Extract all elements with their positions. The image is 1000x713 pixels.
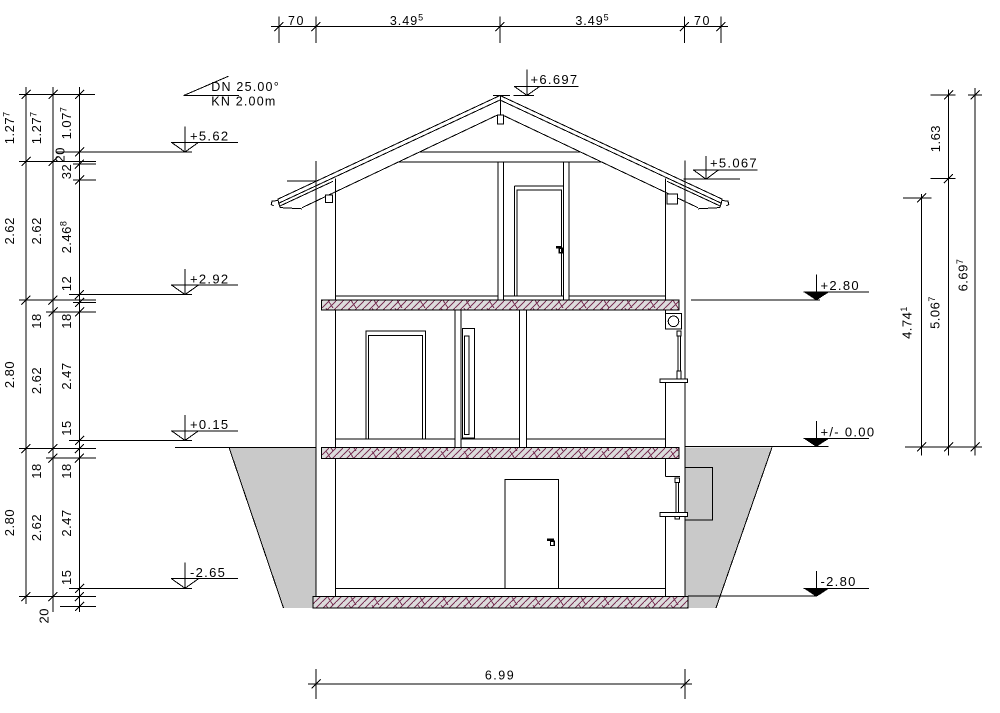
svg-text:15: 15	[59, 420, 74, 435]
svg-text:2.80: 2.80	[2, 361, 17, 388]
svg-text:2.47: 2.47	[59, 362, 74, 389]
svg-text:2.62: 2.62	[29, 367, 44, 394]
svg-text:15: 15	[59, 570, 74, 585]
svg-text:20: 20	[53, 147, 68, 162]
svg-text:+0.15: +0.15	[190, 417, 229, 432]
svg-text:2.47: 2.47	[59, 509, 74, 536]
svg-text:2.62: 2.62	[2, 217, 17, 244]
svg-text:6.99: 6.99	[485, 669, 515, 683]
svg-text:+2.92: +2.92	[190, 271, 229, 286]
svg-text:12: 12	[59, 276, 74, 291]
svg-text:70: 70	[694, 14, 711, 28]
svg-text:70: 70	[288, 14, 305, 28]
svg-text:18: 18	[29, 463, 44, 478]
svg-text:+2.80: +2.80	[821, 278, 860, 293]
svg-text:-2.65: -2.65	[190, 565, 226, 580]
svg-text:+5.62: +5.62	[190, 129, 229, 144]
svg-text:-2.80: -2.80	[821, 574, 857, 589]
svg-text:2.62: 2.62	[29, 217, 44, 244]
svg-text:32: 32	[59, 164, 74, 179]
svg-text:18: 18	[29, 313, 44, 328]
svg-text:+/- 0.00: +/- 0.00	[821, 424, 876, 439]
svg-text:DN 25.00°: DN 25.00°	[211, 80, 280, 94]
svg-text:2.80: 2.80	[2, 509, 17, 536]
svg-text:+5.067: +5.067	[710, 155, 758, 170]
svg-text:1.63: 1.63	[928, 125, 943, 152]
svg-text:18: 18	[59, 313, 74, 328]
svg-text:2.62: 2.62	[29, 514, 44, 541]
svg-text:18: 18	[59, 463, 74, 478]
svg-text:20: 20	[37, 608, 52, 623]
svg-text:+6.697: +6.697	[531, 72, 579, 87]
svg-text:KN 2.00m: KN 2.00m	[211, 94, 276, 108]
